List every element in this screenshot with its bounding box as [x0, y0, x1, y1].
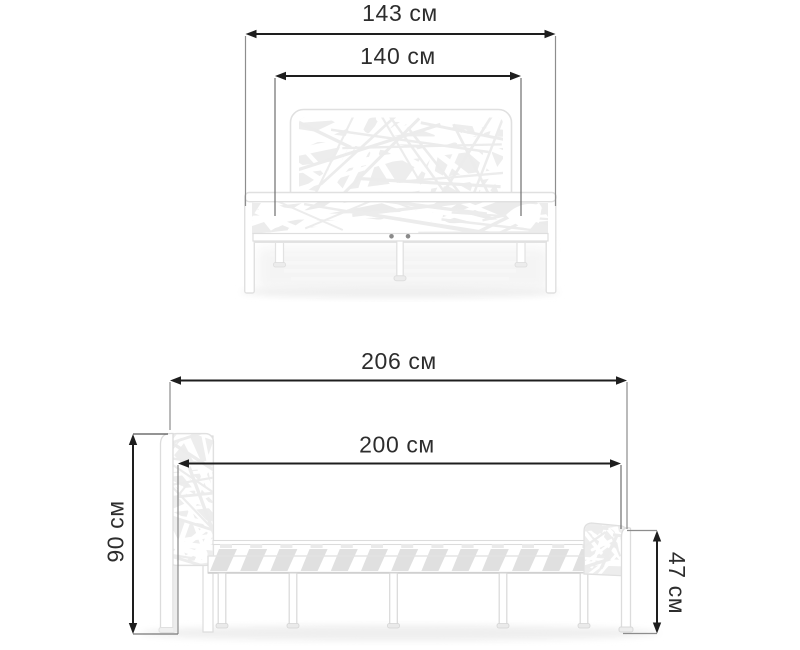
svg-text:90 см: 90 см [103, 500, 129, 562]
svg-text:200 см: 200 см [359, 432, 435, 458]
svg-text:140 см: 140 см [360, 43, 436, 69]
svg-text:143 см: 143 см [362, 0, 438, 26]
svg-text:47 см: 47 см [664, 552, 690, 614]
svg-text:206 см: 206 см [361, 348, 437, 374]
